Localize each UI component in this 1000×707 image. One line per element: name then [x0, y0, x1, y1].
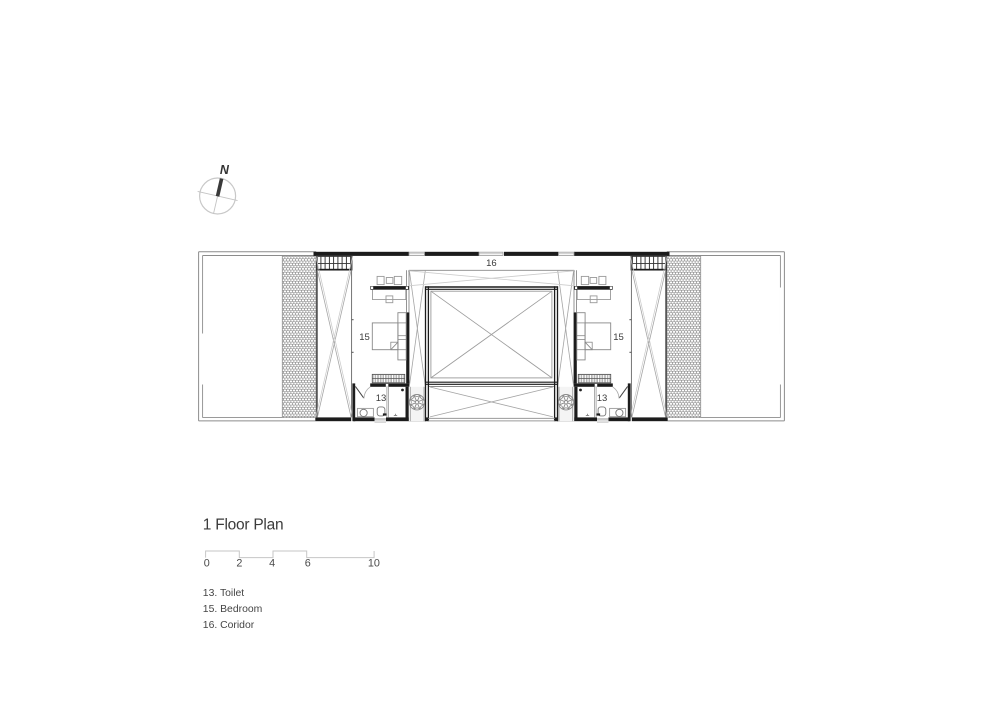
svg-text:0: 0 — [204, 557, 210, 569]
svg-text:4: 4 — [269, 557, 275, 569]
svg-text:16: 16 — [486, 258, 497, 269]
svg-text:1 Floor Plan: 1 Floor Plan — [203, 516, 284, 533]
svg-text:13: 13 — [597, 393, 608, 404]
svg-text:16. Coridor: 16. Coridor — [203, 620, 255, 631]
svg-text:15: 15 — [613, 332, 624, 343]
svg-text:10: 10 — [368, 557, 380, 569]
svg-text:13. Toilet: 13. Toilet — [203, 588, 245, 599]
svg-text:13: 13 — [376, 393, 387, 404]
svg-text:15: 15 — [359, 332, 370, 343]
svg-text:6: 6 — [305, 557, 311, 569]
svg-text:N: N — [220, 163, 230, 177]
svg-text:2: 2 — [236, 557, 242, 569]
svg-text:15. Bedroom: 15. Bedroom — [203, 604, 262, 615]
